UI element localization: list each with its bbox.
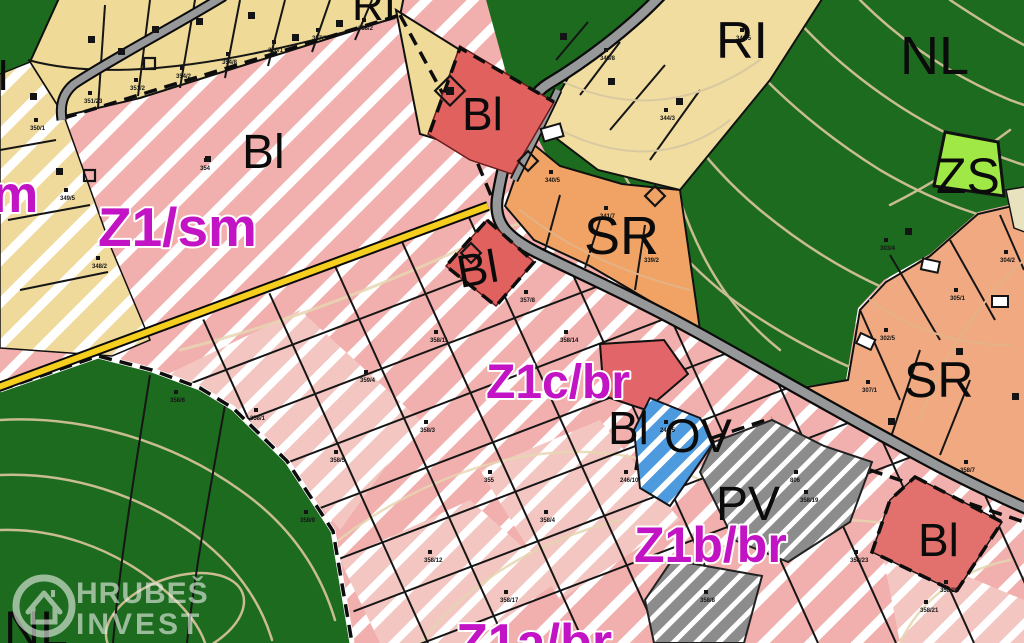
parcel-number: 358/9 xyxy=(300,518,316,524)
parcel-number: 351/2 xyxy=(130,86,146,92)
parcel-number: 358/19 xyxy=(800,498,819,504)
zone-label-ri: RI xyxy=(716,12,768,70)
parcel-number: 351/23 xyxy=(84,99,103,105)
parcel-number: 304/2 xyxy=(1000,258,1016,264)
building-icon xyxy=(544,510,548,514)
building-icon xyxy=(704,590,708,594)
building-icon xyxy=(964,460,968,464)
parcel-number: 358/23 xyxy=(850,558,869,564)
building-icon xyxy=(272,40,276,44)
parcel-number: 348/2 xyxy=(92,264,108,270)
parcel-number: 358/12 xyxy=(424,558,443,564)
zone-label-z1a-br: Z1a/br xyxy=(456,614,612,643)
zone-label-i-cut: I xyxy=(0,51,9,100)
parcel-number: 340/5 xyxy=(545,178,561,184)
building-icon xyxy=(316,28,320,32)
building-icon xyxy=(334,450,338,454)
zone-label-ri-cut: RI xyxy=(352,0,396,30)
zone-label-sm-cut: m xyxy=(0,166,38,224)
zone-label-bl-red-bottom: Bl xyxy=(918,514,959,566)
building-icon xyxy=(794,470,798,474)
zone-label-nl: NL xyxy=(900,26,969,86)
building-icon xyxy=(1004,250,1008,254)
building-icon xyxy=(866,380,870,384)
parcel-number: 357/8 xyxy=(520,298,536,304)
parcel-number: 355 xyxy=(484,478,495,484)
building-icon xyxy=(604,48,608,52)
parcel-number: 349/5 xyxy=(60,196,76,202)
zoning-map-canvas: 351/23351/2354/2354/8356/1357/3358/2350/… xyxy=(0,0,1024,643)
building-icon xyxy=(204,158,208,162)
building-icon xyxy=(504,590,508,594)
building-icon xyxy=(804,490,808,494)
building-icon xyxy=(624,470,628,474)
parcel-number: 358/25 xyxy=(940,588,959,594)
parcel-number: 307/1 xyxy=(862,388,878,394)
parcel-number: 305/1 xyxy=(950,296,966,302)
parcel-number: 354/8 xyxy=(222,60,238,66)
parcel-number: 357/3 xyxy=(312,36,328,42)
parcel-number: 358/4 xyxy=(540,518,556,524)
building-icon xyxy=(226,52,230,56)
parcel-number: 358/17 xyxy=(500,598,519,604)
parcel-number: 358/7 xyxy=(960,468,976,474)
parcel-number: 359/4 xyxy=(360,378,376,384)
parcel-number: 354 xyxy=(200,166,211,172)
building-icon xyxy=(549,170,553,174)
building-icon xyxy=(88,91,92,95)
watermark-brand-line1: HRUBEŠ xyxy=(76,576,209,610)
building-icon xyxy=(854,550,858,554)
parcel-number: 350/1 xyxy=(30,126,46,132)
zone-label-sr-right: SR xyxy=(904,352,973,408)
building-icon xyxy=(424,420,428,424)
zone-label-z1-sm: Z1/sm xyxy=(98,196,257,258)
parcel-number: 354/2 xyxy=(176,74,192,80)
zone-label-bl-red-upper: Bl xyxy=(462,88,503,140)
building-icon xyxy=(488,470,492,474)
watermark-brand-line2: INVEST xyxy=(76,608,202,641)
building-icon xyxy=(304,510,308,514)
building-icon xyxy=(564,330,568,334)
building-icon xyxy=(954,288,958,292)
zone-label-zs: ZS xyxy=(936,148,1000,204)
building-icon xyxy=(254,408,258,412)
building-icon xyxy=(434,330,438,334)
building-icon xyxy=(924,600,928,604)
building-icon xyxy=(944,580,948,584)
parcel-number: 358/1 xyxy=(250,416,266,422)
building-icon xyxy=(34,118,38,122)
zone-label-z1b-br: Z1b/br xyxy=(634,517,787,573)
parcel-number: 358/6 xyxy=(170,398,186,404)
zone-label-sr-center: SR xyxy=(584,206,659,266)
building-icon xyxy=(664,108,668,112)
building-icon xyxy=(884,238,888,242)
zoning-map: 351/23351/2354/2354/8356/1357/3358/2350/… xyxy=(0,0,1024,643)
parcel-number: 358/5 xyxy=(330,458,346,464)
parcel-number: 806 xyxy=(790,478,801,484)
building-icon xyxy=(64,188,68,192)
building-icon xyxy=(364,370,368,374)
building-icon xyxy=(174,390,178,394)
parcel-number: 344/3 xyxy=(660,116,676,122)
building-icon xyxy=(884,328,888,332)
zone-label-ov: OV xyxy=(664,409,733,462)
parcel-number: 358/8 xyxy=(700,598,716,604)
building-icon xyxy=(524,290,528,294)
parcel-number: 246/10 xyxy=(620,478,639,484)
parcel-number: 358/3 xyxy=(420,428,436,434)
parcel-number: 346/8 xyxy=(600,56,616,62)
parcel-number: 358/21 xyxy=(920,608,939,614)
parcel-number: 303/4 xyxy=(880,246,896,252)
building-icon xyxy=(180,66,184,70)
parcel-number: 356/1 xyxy=(268,48,284,54)
building-icon xyxy=(428,550,432,554)
parcel-number: 358/14 xyxy=(560,338,579,344)
building-icon xyxy=(134,78,138,82)
zone-label-bl-large: Bl xyxy=(242,126,285,179)
parcel-number: 302/5 xyxy=(880,336,896,342)
parcel-number: 358/11 xyxy=(430,338,449,344)
zone-label-bl-near-ov: Bl xyxy=(608,402,649,454)
